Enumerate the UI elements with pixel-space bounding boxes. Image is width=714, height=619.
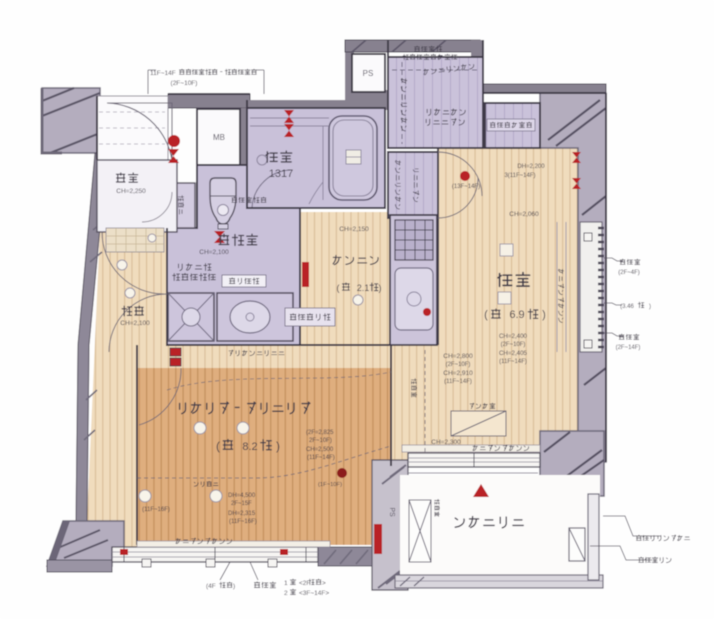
svg-text:(13F~14F): (13F~14F) — [452, 184, 480, 190]
svg-text:2: 2 — [284, 590, 288, 597]
svg-text:(: ( — [484, 309, 488, 321]
svg-text:DH=2,315: DH=2,315 — [228, 511, 256, 517]
svg-text:(11F~16F): (11F~16F) — [142, 507, 170, 513]
svg-text:(11F~16F): (11F~16F) — [229, 519, 257, 525]
svg-text:(3.46: (3.46 — [620, 304, 634, 310]
svg-text:CH=2,910: CH=2,910 — [443, 370, 473, 377]
svg-text:CH=2,100: CH=2,100 — [199, 249, 229, 256]
svg-text:(2F~14F): (2F~14F) — [616, 345, 641, 351]
svg-text:6.9: 6.9 — [509, 309, 524, 321]
svg-text:(2F~10F): (2F~10F) — [446, 362, 471, 368]
svg-text:(11F~14F): (11F~14F) — [499, 359, 527, 365]
svg-text:DH=4,500: DH=4,500 — [228, 493, 256, 499]
svg-text:): ) — [233, 583, 235, 590]
svg-text:2F~10F): 2F~10F) — [309, 438, 332, 444]
svg-text:CH=2,500: CH=2,500 — [306, 447, 334, 453]
svg-text:CH=2,100: CH=2,100 — [120, 320, 150, 327]
svg-text:CH=2,800: CH=2,800 — [443, 353, 473, 360]
svg-text:(: ( — [337, 283, 340, 293]
svg-text:CH=2,300: CH=2,300 — [431, 439, 461, 446]
svg-text:): ) — [379, 283, 382, 293]
svg-text:PS: PS — [363, 69, 374, 78]
svg-text:(2F~10F): (2F~10F) — [501, 342, 526, 348]
svg-text:CH=2,250: CH=2,250 — [116, 188, 146, 195]
svg-text:(11F~14F): (11F~14F) — [307, 455, 335, 461]
svg-text:>: > — [322, 580, 326, 587]
svg-text:2.1: 2.1 — [357, 283, 370, 293]
svg-text:1317: 1317 — [269, 168, 293, 180]
svg-text:): ) — [649, 304, 651, 310]
svg-text:DH=2,200: DH=2,200 — [517, 164, 545, 170]
svg-text:(1F~10F): (1F~10F) — [318, 482, 342, 488]
svg-text:11F~14F: 11F~14F — [150, 70, 176, 77]
svg-text:(2F=2,825: (2F=2,825 — [306, 430, 334, 436]
svg-text:CH=2,150: CH=2,150 — [339, 226, 369, 233]
svg-text:CH=2,060: CH=2,060 — [509, 211, 539, 218]
svg-text:): ) — [542, 309, 546, 321]
svg-text:CH=2,405: CH=2,405 — [499, 350, 528, 357]
svg-text:): ) — [276, 439, 280, 453]
svg-text:(4F: (4F — [206, 583, 216, 590]
svg-text:CH=2,400: CH=2,400 — [499, 333, 528, 340]
svg-text:PS: PS — [388, 507, 395, 517]
svg-text:3(11F~14F): 3(11F~14F) — [504, 173, 535, 179]
svg-text:1: 1 — [284, 580, 288, 587]
svg-text:MB: MB — [213, 133, 225, 142]
svg-text:2F~15F: 2F~15F — [231, 501, 252, 507]
svg-text:(2F~4F): (2F~4F) — [618, 270, 640, 276]
svg-text:(: ( — [216, 439, 220, 453]
svg-text:8.2: 8.2 — [242, 441, 257, 453]
svg-text:(11F~14F): (11F~14F) — [444, 379, 472, 385]
svg-text:<3F~14F>: <3F~14F> — [299, 590, 329, 597]
svg-text:(2F~10F): (2F~10F) — [171, 80, 198, 87]
